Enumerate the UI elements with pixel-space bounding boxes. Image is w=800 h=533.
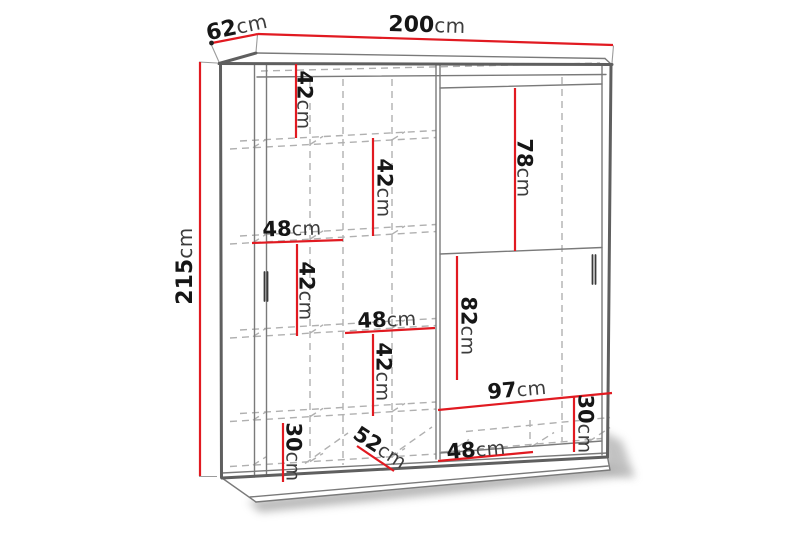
- wardrobe-dimension-diagram: 62cm 200cm 215cm 42cm 42cm 48cm 42cm 78c…: [0, 0, 800, 533]
- dim-line-depth-62: [212, 34, 258, 43]
- wardrobe-line-drawing: [0, 0, 800, 533]
- cabinet-body: [219, 53, 612, 502]
- dim-line-width-200: [258, 34, 613, 45]
- dim-endpoint-dot: [209, 41, 214, 46]
